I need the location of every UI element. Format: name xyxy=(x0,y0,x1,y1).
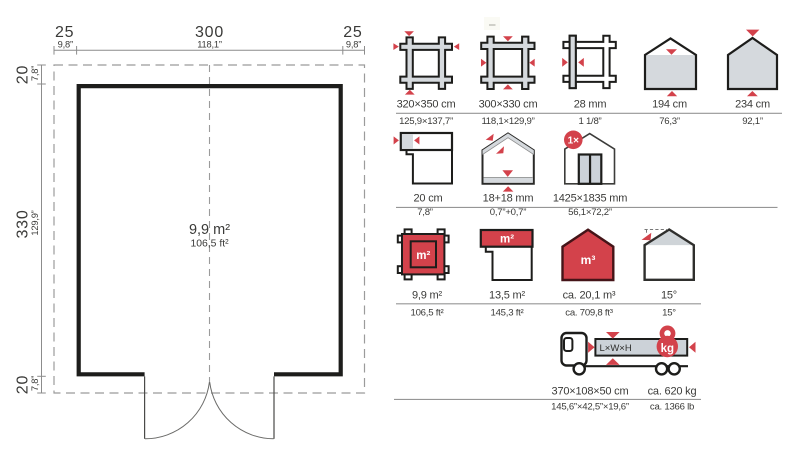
svg-text:330: 330 xyxy=(14,209,31,238)
svg-text:9,8”: 9,8” xyxy=(58,40,73,50)
svg-text:15°: 15° xyxy=(662,308,676,319)
svg-text:25: 25 xyxy=(343,24,362,41)
svg-text:300×330 cm: 300×330 cm xyxy=(479,99,538,111)
svg-text:7,8”: 7,8” xyxy=(30,66,40,81)
svg-text:m²: m² xyxy=(416,250,430,262)
svg-text:92,1”: 92,1” xyxy=(742,116,763,127)
svg-text:L×W×H: L×W×H xyxy=(600,343,632,354)
svg-text:370×108×50 cm: 370×108×50 cm xyxy=(552,385,629,397)
svg-text:106,5 ft²: 106,5 ft² xyxy=(411,308,445,319)
svg-text:9,9 m²: 9,9 m² xyxy=(189,222,230,238)
svg-text:0,7”+0,7”: 0,7”+0,7” xyxy=(490,207,526,218)
svg-text:m²: m² xyxy=(500,234,514,246)
svg-text:ca. 20,1 m³: ca. 20,1 m³ xyxy=(563,290,616,302)
svg-text:118,1”: 118,1” xyxy=(197,40,222,50)
svg-text:145,6”×42,5”×19,6”: 145,6”×42,5”×19,6” xyxy=(551,401,629,412)
svg-text:20: 20 xyxy=(14,375,31,394)
svg-text:125,9×137,7”: 125,9×137,7” xyxy=(399,116,453,127)
svg-text:56,1×72,2”: 56,1×72,2” xyxy=(568,207,612,218)
svg-text:320×350 cm: 320×350 cm xyxy=(397,99,456,111)
svg-text:9,8”: 9,8” xyxy=(346,40,361,50)
svg-text:118,1×129,9”: 118,1×129,9” xyxy=(481,116,534,127)
svg-text:76,3”: 76,3” xyxy=(659,116,680,127)
svg-text:20: 20 xyxy=(14,65,31,84)
svg-text:20 cm: 20 cm xyxy=(414,193,443,205)
svg-text:13,5 m²: 13,5 m² xyxy=(489,290,525,302)
svg-text:kg: kg xyxy=(661,343,674,355)
svg-text:28 mm: 28 mm xyxy=(574,99,607,111)
svg-text:1425×1835 mm: 1425×1835 mm xyxy=(553,193,627,205)
svg-text:7,8”: 7,8” xyxy=(417,207,433,218)
svg-text:7,8”: 7,8” xyxy=(30,376,40,391)
svg-text:ca. 709,8 ft³: ca. 709,8 ft³ xyxy=(565,308,612,319)
svg-text:15°: 15° xyxy=(661,290,677,302)
svg-text:145,3 ft²: 145,3 ft² xyxy=(491,308,525,319)
svg-text:18+18 mm: 18+18 mm xyxy=(483,193,534,205)
svg-text:194 cm: 194 cm xyxy=(652,99,687,111)
svg-text:1 1/8”: 1 1/8” xyxy=(578,116,601,127)
svg-text:9,9 m²: 9,9 m² xyxy=(412,290,443,302)
svg-text:ca. 1366 lb: ca. 1366 lb xyxy=(650,401,694,412)
svg-text:300: 300 xyxy=(195,24,224,41)
svg-text:1×: 1× xyxy=(568,135,580,146)
svg-text:25: 25 xyxy=(55,24,74,41)
svg-text:106,5 ft²: 106,5 ft² xyxy=(190,239,229,250)
svg-text:129,9”: 129,9” xyxy=(30,210,40,235)
svg-text:m³: m³ xyxy=(581,253,596,267)
svg-text:234 cm: 234 cm xyxy=(735,99,770,111)
svg-text:ca. 620 kg: ca. 620 kg xyxy=(648,385,697,397)
